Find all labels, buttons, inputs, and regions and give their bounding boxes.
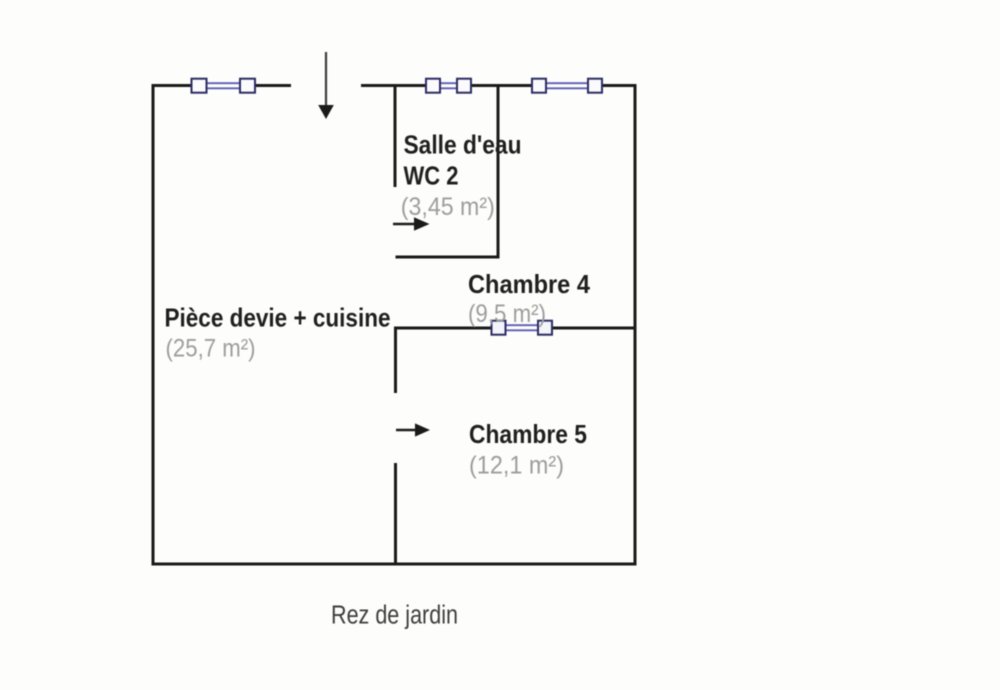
svg-text:(3,45 m²): (3,45 m²) [401, 193, 495, 221]
svg-text:Salle d'eau: Salle d'eau [404, 129, 522, 159]
svg-text:(25,7 m²): (25,7 m²) [166, 335, 256, 363]
svg-text:WC 2: WC 2 [404, 160, 459, 190]
svg-text:Chambre 4: Chambre 4 [468, 269, 590, 299]
svg-text:Rez de jardin: Rez de jardin [331, 602, 458, 630]
svg-text:(12,1 m²): (12,1 m²) [469, 452, 564, 480]
svg-text:(9,5 m²): (9,5 m²) [468, 300, 546, 328]
svg-text:Pièce devie + cuisine: Pièce devie + cuisine [165, 303, 391, 333]
svg-text:Chambre 5: Chambre 5 [469, 419, 587, 449]
